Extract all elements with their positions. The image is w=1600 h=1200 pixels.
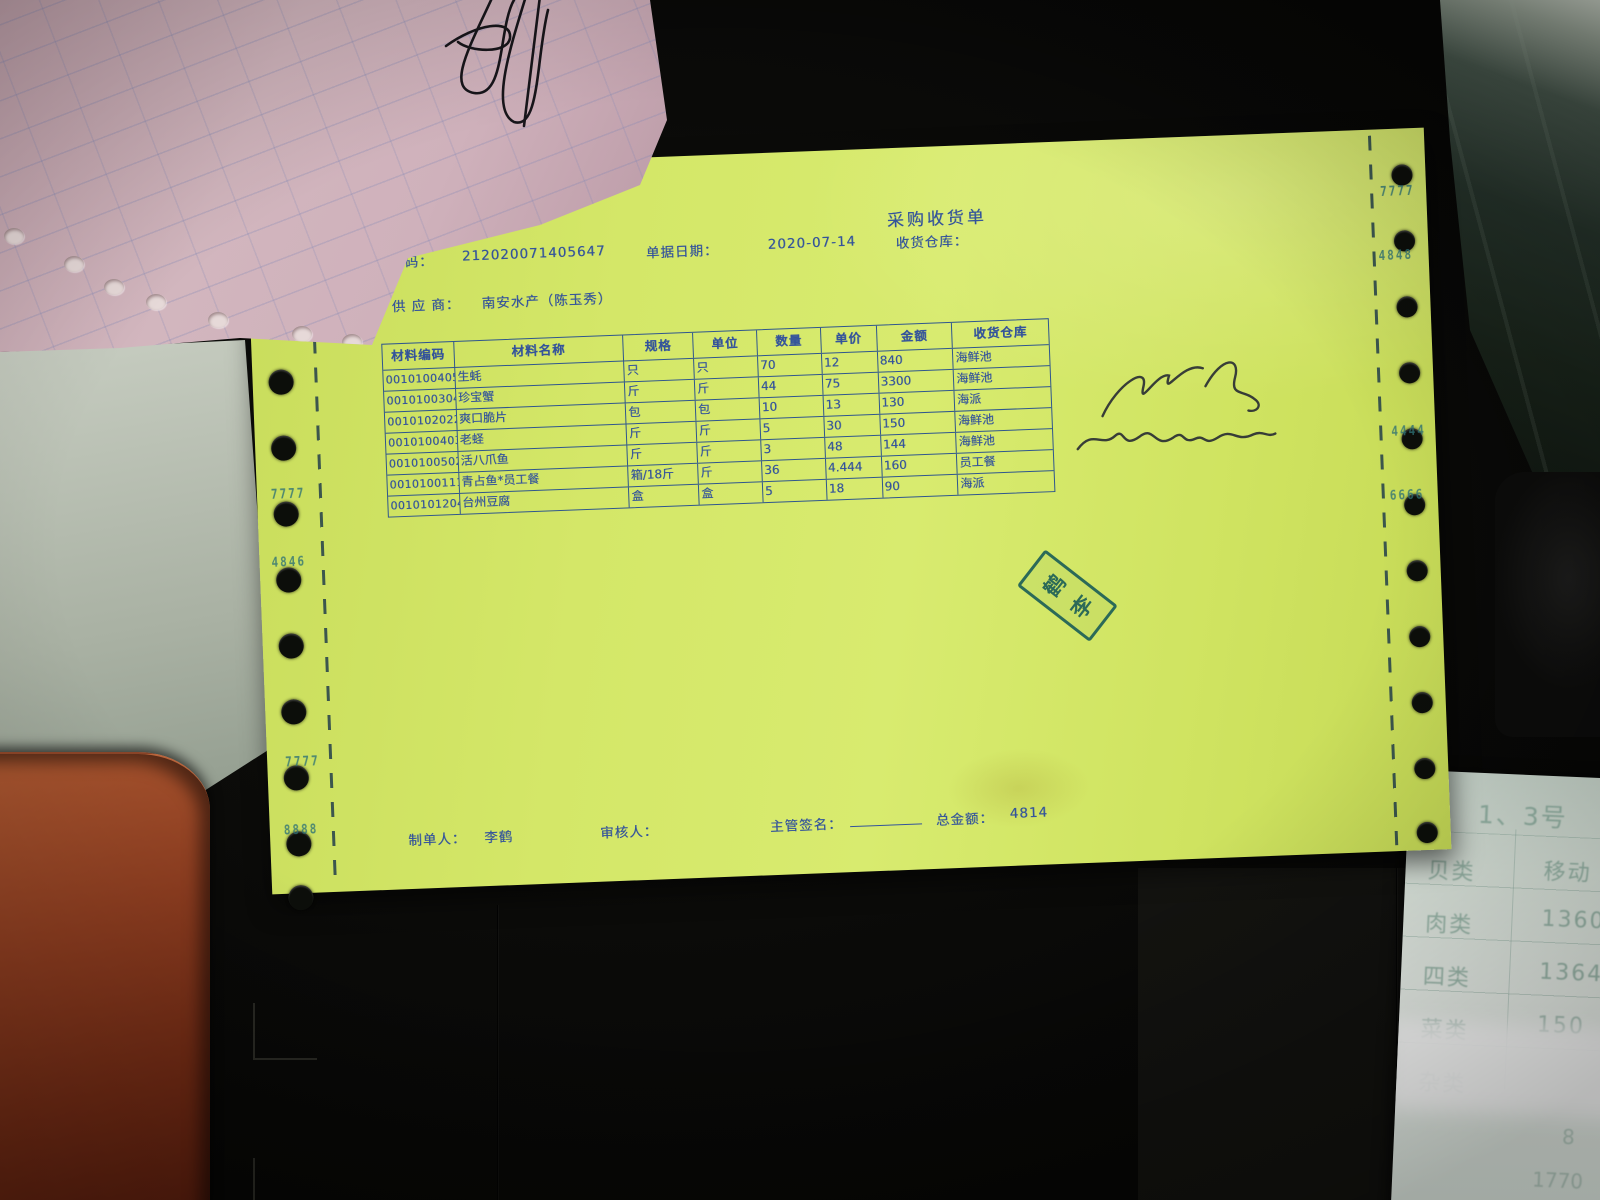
name-stamp: 鹤 李: [1017, 549, 1118, 642]
punch-hole: [276, 567, 302, 593]
column-header: 数量: [757, 328, 822, 355]
table-cell: 4.444: [826, 457, 883, 479]
punch-hole: [1396, 296, 1418, 318]
side-receipt-faint-value: 1770: [1532, 1167, 1584, 1193]
reviewer-label: 审核人：: [600, 820, 659, 842]
table-cell: 3300: [878, 370, 954, 393]
side-receipt-row-label: 贝类: [1427, 853, 1476, 887]
side-receipt-faint-value: 8: [1562, 1125, 1576, 1150]
maker-value: 李鹤: [484, 825, 514, 846]
table-cell: 海派: [958, 471, 1054, 495]
punch-hole: [1406, 560, 1428, 582]
table-cell: 海派: [955, 387, 1051, 411]
punch-hole: [273, 501, 299, 527]
maker-label: 制单人：: [408, 827, 467, 849]
punch-hole: [64, 256, 84, 272]
table-cell: 0010102022: [385, 410, 457, 433]
table-cell: 斤: [627, 422, 698, 445]
table-cell: 斤: [625, 380, 696, 403]
footer-row: 制单人： 李鹤 审核人： 主管签名： 总金额： 4814: [270, 789, 1450, 854]
table-cell: 0010100304: [384, 389, 456, 412]
table-cell: 员工餐: [957, 450, 1053, 474]
side-receipt-header: 1、3号: [1477, 795, 1568, 835]
tractor-mark: 7777: [271, 486, 306, 503]
table-cell: 海鲜池: [953, 345, 1049, 369]
table-cell: 斤: [697, 440, 762, 462]
punch-hole: [1411, 692, 1433, 714]
perforation-line-left: [313, 338, 337, 886]
table-cell: 5: [760, 417, 825, 439]
table-cell: 0010100403: [386, 431, 458, 454]
supplier-value: 南安水产（陈玉秀）: [481, 287, 612, 312]
table-cell: 160: [881, 454, 957, 477]
signature-line: [850, 823, 922, 827]
supervisor-label: 主管签名：: [770, 812, 843, 835]
date-label: 单据日期：: [646, 239, 719, 262]
column-header: 收货仓库: [952, 319, 1049, 348]
table-cell: 0010101204: [388, 494, 460, 517]
column-header: 单位: [693, 330, 758, 357]
punch-hole: [1399, 362, 1421, 384]
side-receipt-row-label: 四类: [1422, 959, 1471, 993]
table-cell: 13: [823, 394, 880, 416]
punch-hole: [1416, 822, 1438, 844]
table-cell: 0010100502: [386, 452, 458, 475]
table-cell: 44: [759, 375, 824, 397]
table-cell: 150: [880, 412, 956, 435]
column-header: 金额: [876, 323, 953, 351]
punch-hole: [208, 312, 228, 328]
photo-scene: 1、3号 贝类移动肉类1360四类1364菜类150杂类 8 1770 7777…: [0, 0, 1600, 1200]
table-cell: 130: [879, 391, 955, 414]
tractor-mark: 4846: [271, 554, 306, 571]
desk-seam: [497, 905, 498, 1200]
punch-hole: [104, 279, 124, 295]
code-value: 212020071405647: [462, 243, 606, 265]
table-cell: 30: [824, 415, 881, 437]
table-cell: 只: [694, 356, 759, 378]
column-header: 单价: [821, 326, 878, 353]
table-cell: 12: [822, 352, 879, 374]
total-value: 4814: [1009, 805, 1048, 822]
light-glare: [1390, 1019, 1600, 1121]
tractor-mark: 6666: [1390, 487, 1425, 504]
table-cell: 75: [822, 373, 879, 395]
table-cell: 0010100405: [383, 368, 455, 391]
table-cell: 90: [882, 475, 958, 498]
supplier-label: 供 应 商：: [391, 293, 460, 316]
table-cell: 3: [761, 438, 826, 460]
column-header: 材料编码: [382, 342, 455, 370]
handwritten-note: [1064, 336, 1309, 475]
items-table: 材料编码材料名称规格单位数量单价金额收货仓库0010100405生蚝只只7012…: [381, 318, 1055, 518]
column-header: 规格: [623, 333, 694, 361]
table-cell: 36: [762, 459, 827, 481]
desk-emboss-mark: [253, 1003, 317, 1060]
table-cell: 斤: [697, 419, 762, 441]
table-cell: 海鲜池: [956, 429, 1052, 453]
punch-hole: [281, 699, 307, 725]
stamp-char-top: 鹤: [1035, 567, 1072, 602]
table-cell: 48: [825, 436, 882, 458]
punch-hole: [1414, 758, 1436, 780]
desk-emboss-mark: [253, 1158, 317, 1200]
pen-scribble: [440, 0, 610, 144]
table-cell: 盒: [699, 482, 764, 504]
total-label: 总金额：: [935, 807, 994, 829]
table-cell: 144: [881, 433, 957, 456]
punch-hole: [271, 435, 297, 461]
punch-hole: [4, 228, 24, 244]
table-cell: 840: [877, 349, 953, 372]
punch-hole: [292, 326, 312, 342]
side-receipt-row-value: 1364: [1539, 960, 1600, 988]
tractor-mark: 7777: [1380, 183, 1415, 200]
warehouse-label: 收货仓库：: [895, 229, 968, 252]
date-value: 2020-07-14: [767, 233, 856, 252]
side-receipt-row-value: 移动: [1543, 854, 1592, 888]
tractor-mark: 4444: [1391, 422, 1426, 439]
table-cell: 斤: [628, 443, 699, 466]
dark-object: [1495, 472, 1600, 737]
table-cell: 盒: [629, 485, 700, 508]
table-cell: 海鲜池: [956, 408, 1052, 432]
stamp-char-bottom: 李: [1063, 589, 1100, 624]
side-receipt-row-label: 肉类: [1425, 906, 1474, 940]
punch-hole: [268, 369, 294, 395]
side-receipt-row-value: 1360: [1541, 907, 1600, 935]
table-cell: 包: [696, 398, 761, 420]
table-cell: 只: [624, 359, 695, 382]
punch-hole: [278, 633, 304, 659]
table-cell: 斤: [698, 461, 763, 483]
table-cell: 0010100111: [387, 473, 459, 496]
table-cell: 海鲜池: [954, 366, 1050, 390]
tractor-mark: 7777: [285, 753, 320, 770]
table-cell: 18: [826, 478, 883, 500]
leather-folder: [0, 752, 210, 1200]
table-cell: 斤: [695, 377, 760, 399]
table-cell: 10: [759, 396, 824, 418]
table-cell: 70: [758, 354, 823, 376]
table-cell: 包: [626, 401, 697, 424]
table-cell: 5: [763, 480, 828, 502]
punch-hole: [1409, 626, 1431, 648]
table-cell: 箱/18斤: [628, 464, 699, 487]
punch-hole: [146, 294, 166, 310]
